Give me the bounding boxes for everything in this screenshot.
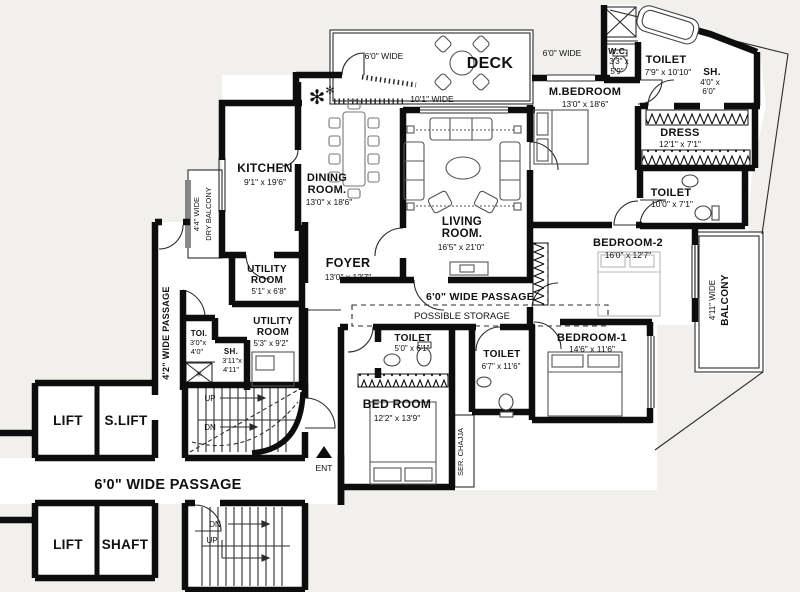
toilet-right-label: TOILET — [651, 187, 692, 199]
bedroom1-dims: 14'6" x 11'6" — [569, 344, 615, 354]
dress-dims: 12'1" x 7'1" — [659, 139, 701, 149]
toilet-right-dims: 10'0" x 7'1" — [651, 199, 693, 209]
kitchen-label: KITCHEN — [237, 161, 292, 175]
plant-icon: ✻ — [309, 87, 326, 109]
deck-width-label: 10'1" WIDE — [410, 94, 454, 104]
toilet-bedroom-dims: 5'0" x 6'1" — [395, 344, 430, 353]
bed-room-label: BED ROOM — [363, 397, 431, 411]
balcony-right-label: BALCONY — [720, 274, 731, 326]
stairs-upper-dn-label: DN — [204, 423, 216, 432]
dry-balcony-label: DRY BALCONY — [204, 187, 213, 241]
living-dims: 16'5" x 21'0" — [438, 242, 485, 252]
shower-small-dims-2: 4'11" — [223, 365, 239, 374]
toilet-top-label: TOILET — [646, 54, 687, 66]
dining-label-1: DINING — [307, 172, 347, 184]
lift-upper-label: LIFT — [53, 413, 83, 428]
mbedroom-dims: 13'0" x 18'6" — [562, 99, 609, 109]
living-label-2: ROOM. — [442, 228, 482, 240]
utility-upper-dims: 5'1" x 6'8" — [252, 287, 287, 296]
bed-room-dims: 12'2" x 13'9" — [374, 413, 421, 423]
mbedroom-label: M.BEDROOM — [549, 86, 621, 98]
shower-top-dims-1: 4'0" x — [700, 78, 720, 87]
bedroom2-dims: 16'0" x 12'7" — [605, 250, 652, 260]
plant-icon: ✻ — [325, 85, 334, 97]
utility-lower-label-1: UTILITY — [253, 316, 293, 327]
wc-icon — [499, 394, 513, 417]
toilet-middle-dims: 6'7" x 11'6" — [482, 362, 521, 371]
utility-lower-label-2: ROOM — [257, 327, 289, 338]
deck-wide-right-label: 6'0" WIDE — [543, 48, 582, 58]
ser-chajja-label: SER. CHAJJA — [456, 428, 465, 476]
entrance-label: ENT — [316, 463, 333, 473]
toi-dims-1: 3'0"x — [190, 338, 206, 347]
dress-label: DRESS — [660, 127, 699, 139]
lift-lower-label: LIFT — [53, 537, 83, 552]
bedroom1-label: BEDROOM-1 — [557, 332, 627, 344]
toi-dims-2: 4'0" — [191, 347, 204, 356]
toi-label: TOI. — [191, 329, 208, 338]
dining-dims: 13'0" x 18'6" — [306, 197, 353, 207]
floor-plan-page: DECK 6'0" WIDE 6'0" WIDE 10'1" WIDE KITC… — [0, 0, 800, 592]
possible-storage-label: POSSIBLE STORAGE — [414, 311, 510, 322]
shower-small-dims-1: 3'11"x — [222, 356, 242, 365]
sink-icon — [384, 354, 400, 366]
toilet-middle-label: TOILET — [483, 349, 520, 360]
star-icon: ✳ — [196, 370, 203, 379]
wc-dims-2: 5'9" — [610, 67, 623, 76]
toilet-top-dims: 7'9" x 10'10" — [645, 67, 692, 77]
stairs-upper-up-label: UP — [204, 394, 215, 403]
bedroom2-label: BEDROOM-2 — [593, 237, 663, 249]
deck-wide-left-label: 6'0" WIDE — [365, 51, 404, 61]
wc-dims-1: 3'3" x — [609, 57, 629, 66]
utility-upper-label-1: UTILITY — [247, 264, 287, 275]
dining-label-2: ROOM. — [308, 184, 347, 196]
kitchen-dims: 9'1" x 19'6" — [244, 177, 286, 187]
sink-icon — [477, 377, 491, 387]
shower-top-label: SH. — [703, 67, 721, 78]
living-label-1: LIVING — [442, 216, 482, 228]
deck-label: DECK — [467, 55, 514, 72]
passage-bottom-label: 6'0" WIDE PASSAGE — [94, 477, 241, 493]
stairs-lower-up-label: UP — [206, 536, 217, 545]
shower-small-label: SH. — [224, 347, 238, 356]
foyer-dims: 13'0" x 12'7" — [325, 272, 372, 282]
passage-side-label: 4'2" WIDE PASSAGE — [161, 286, 171, 379]
shaft-label: SHAFT — [102, 537, 149, 552]
passage-middle-label: 6'0" WIDE PASSAGE — [426, 291, 534, 303]
wc-icon — [695, 206, 719, 220]
floor-plan-drawing: DECK 6'0" WIDE 6'0" WIDE 10'1" WIDE KITC… — [0, 0, 800, 592]
balcony-right-width: 4'11" WIDE — [708, 280, 717, 320]
dry-balcony-width: 4'4" WIDE — [192, 197, 201, 231]
s-lift-label: S.LIFT — [104, 413, 147, 428]
sink-icon — [682, 175, 698, 187]
shower-top-dims-2: 6'0" — [702, 87, 715, 96]
wc-label: W.C. — [608, 46, 628, 56]
utility-upper-label-2: ROOM — [251, 275, 283, 286]
utility-lower-dims: 5'3" x 9'2" — [254, 339, 289, 348]
foyer-label: FOYER — [326, 256, 371, 270]
toilet-bedroom-label: TOILET — [394, 333, 431, 344]
stairs-lower-dn-label: DN — [209, 520, 221, 529]
